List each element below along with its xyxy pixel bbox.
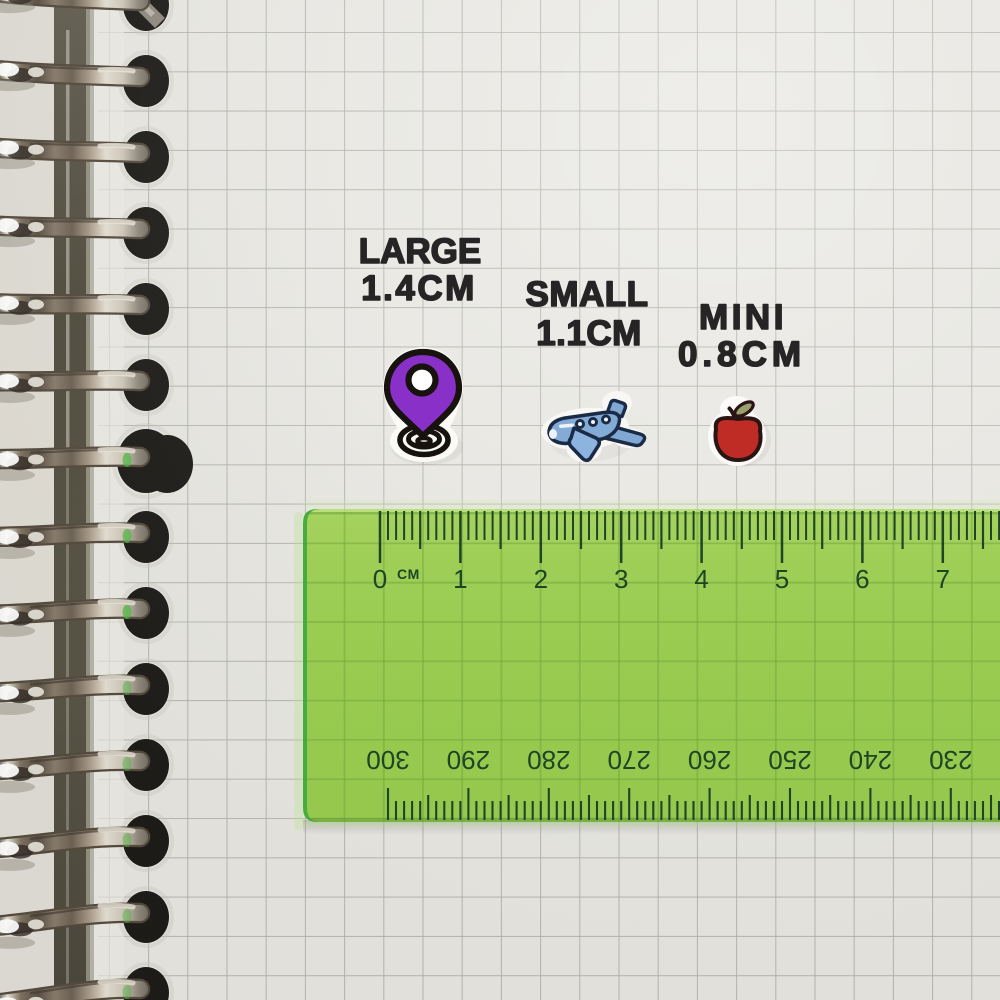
svg-text:4: 4 [694, 564, 708, 594]
svg-text:0.8CM: 0.8CM [678, 335, 806, 374]
svg-text:1.4CM: 1.4CM [361, 269, 477, 308]
svg-text:260: 260 [688, 745, 731, 775]
svg-text:7: 7 [936, 564, 950, 594]
svg-text:270: 270 [608, 745, 651, 775]
svg-text:1.1CM: 1.1CM [536, 314, 642, 353]
svg-text:5: 5 [775, 564, 789, 594]
svg-text:250: 250 [768, 745, 811, 775]
svg-text:280: 280 [527, 745, 570, 775]
svg-text:1: 1 [453, 564, 467, 594]
svg-text:CM: CM [397, 566, 420, 582]
svg-text:MINI: MINI [699, 298, 787, 337]
svg-text:3: 3 [614, 564, 628, 594]
svg-text:240: 240 [849, 745, 892, 775]
svg-text:300: 300 [366, 745, 409, 775]
svg-text:6: 6 [855, 564, 869, 594]
svg-text:0: 0 [373, 564, 387, 594]
svg-text:SMALL: SMALL [525, 275, 648, 314]
svg-text:290: 290 [447, 745, 490, 775]
svg-text:LARGE: LARGE [359, 232, 482, 271]
svg-text:2: 2 [534, 564, 548, 594]
svg-text:230: 230 [929, 745, 972, 775]
